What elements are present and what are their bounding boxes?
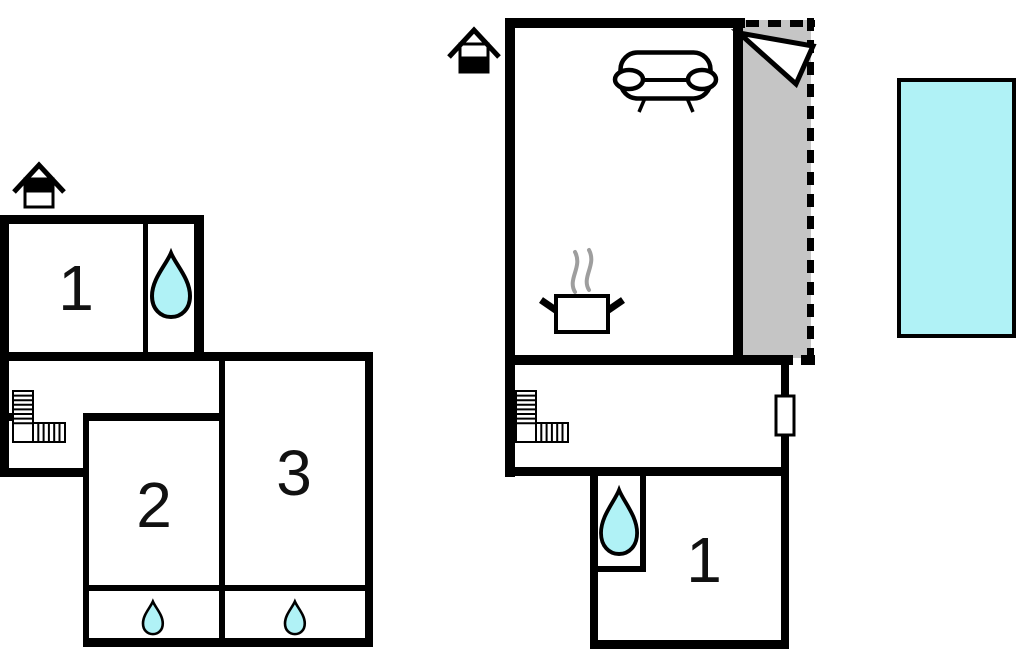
wall-segment [83,413,89,647]
wall-segment [83,413,225,421]
wall-segment [505,355,793,365]
staircase-icon [516,391,568,442]
wall-segment [733,18,743,365]
sofa-icon [615,53,716,113]
wall-segment [590,640,789,649]
wall-segment [598,566,646,572]
staircase-icon [13,391,65,442]
wall-segment [365,352,373,647]
room-label: 2 [136,469,172,541]
water-drop-icon [601,490,637,554]
wall-segment [0,352,373,361]
wall-segment [801,355,815,365]
swimming-pool [899,80,1014,336]
room-label: 1 [686,524,722,596]
wall-segment [0,215,9,477]
wall-segment [0,468,89,477]
wall-segment [0,215,202,224]
wall-segment [194,215,204,358]
wall-segment [640,476,646,572]
room-label: 3 [276,437,312,509]
wall-segment [505,467,789,476]
steam-icon [573,252,578,292]
cooking-pot-icon [541,250,623,332]
steam-icon [587,250,592,290]
room-label: 1 [58,252,94,324]
floor-plan-drawing: 1 2 3 [0,0,1016,652]
upper-floor-plan: 1 2 3 [0,165,373,647]
wall-segment [590,467,598,649]
wall-segment [83,638,373,647]
house-upper-floor-icon [14,165,64,207]
door-icon [776,396,794,435]
ground-floor-plan: 1 [449,18,815,649]
wall-segment [505,18,745,28]
wall-segment [219,357,225,647]
wall-segment [83,585,373,591]
water-drop-icon [143,602,163,635]
water-drop-icon [285,602,305,635]
wall-segment [505,18,515,477]
wall-segment [143,218,148,358]
water-drop-icon [152,253,190,317]
house-ground-floor-icon [449,30,499,72]
floor-plan-canvas: 1 2 3 [0,0,1016,652]
